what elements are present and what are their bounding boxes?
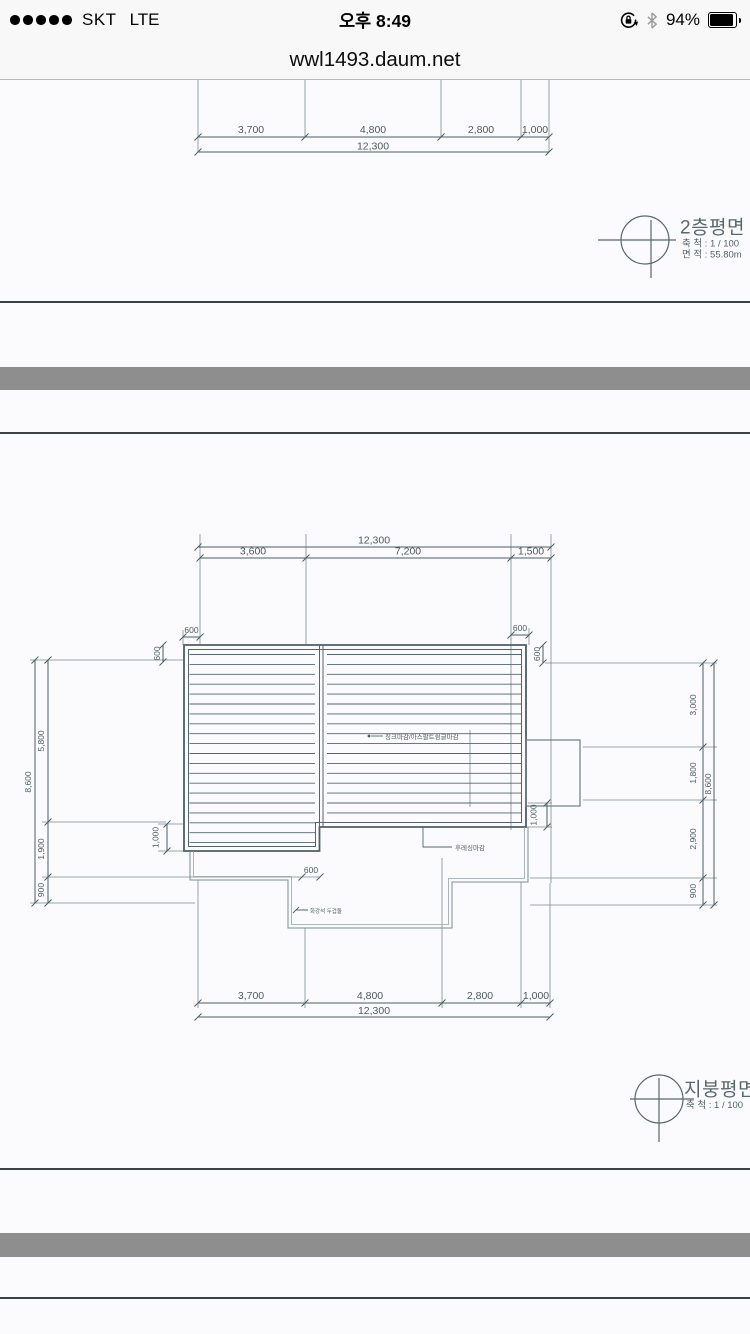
dim-label: 2,800: [467, 990, 493, 1002]
network-label: LTE: [130, 10, 160, 30]
dim-label: 600: [184, 625, 198, 635]
battery-icon: [708, 12, 741, 28]
coping-note: 화강석 두겁돌: [310, 907, 342, 915]
dim-label: 900: [688, 884, 698, 898]
signal-strength-icon: [10, 15, 75, 25]
rotation-lock-icon: [619, 11, 638, 30]
dim-total-label: 12,300: [357, 141, 389, 153]
dim-total-label: 8,600: [703, 773, 713, 795]
dim-label: 600: [513, 623, 527, 633]
dim-label: 1,000: [151, 827, 161, 849]
dim-label: 3,600: [240, 546, 266, 558]
url-text: wwl1493.daum.net: [290, 48, 461, 72]
small-dimension-lines-right: [508, 632, 551, 831]
dim-label: 2,800: [468, 124, 494, 136]
scale-label: 축 척 : 1 / 100: [686, 1100, 743, 1111]
status-bar: SKT LTE 오후 8:49 94%: [0, 0, 750, 40]
extension-lines: [30, 534, 717, 1008]
dim-label: 1,900: [36, 838, 46, 860]
dimension-labels: 3,700 4,800 2,800 1,000 12,300: [238, 124, 548, 153]
dim-label: 3,700: [238, 990, 264, 1002]
dim-label: 4,800: [357, 990, 383, 1002]
phone-screen: SKT LTE 오후 8:49 94% w: [0, 0, 750, 1334]
dim-label: 3,000: [688, 694, 698, 716]
dim-label: 5,800: [36, 730, 46, 752]
dimension-labels-left: 5,800 1,900 900 8,600 1,000 600 600: [23, 625, 199, 897]
floor-plan-2f-partial: 3,700 4,800 2,800 1,000 12,300 2층평면 축 척 …: [0, 80, 750, 301]
bluetooth-icon: [646, 12, 658, 29]
page-separator-band: [0, 367, 750, 390]
annotations: 징크마감/아스팔트슁글마감 후레싱마감 화강석 두겁돌: [293, 732, 485, 915]
dim-label: 600: [304, 865, 318, 875]
dim-total-label: 12,300: [358, 535, 390, 547]
title-block-2f: 2층평면 축 척 : 1 / 100 면 적 : 55.80m: [598, 216, 745, 278]
roof-hatch-left: [190, 655, 316, 843]
dim-label: 600: [532, 647, 542, 661]
dim-label: 4,800: [360, 124, 386, 136]
battery-percent: 94%: [666, 10, 700, 30]
dim-label: 7,200: [395, 546, 421, 558]
page-separator-band: [0, 1233, 750, 1257]
page-title: 2층평면: [680, 217, 745, 239]
carrier-label: SKT: [82, 10, 117, 30]
dim-total-label: 12,300: [358, 1005, 390, 1017]
page-edge-line: [0, 1168, 750, 1170]
dim-label: 2,900: [688, 828, 698, 850]
roof-plan-drawing: 12,300 3,600 7,200 1,500 3,700: [0, 434, 750, 1168]
roof-outline: [184, 645, 526, 851]
dim-label: 3,700: [238, 124, 264, 136]
title-block-roof: 지붕평면 축 척 : 1 / 100: [630, 1075, 750, 1142]
step-dimension: 600: [299, 865, 324, 881]
dim-label: 1,500: [518, 546, 544, 558]
browser-chrome: SKT LTE 오후 8:49 94% w: [0, 0, 750, 80]
dim-total-label: 8,600: [23, 771, 33, 793]
roof-finish-note: 징크마감/아스팔트슁글마감: [385, 732, 459, 741]
dim-label: 1,000: [529, 804, 539, 826]
page-edge-line: [0, 301, 750, 303]
page-title: 지붕평면: [684, 1079, 750, 1101]
page-edge-line: [0, 1297, 750, 1299]
dimension-labels-right: 3,000 1,800 2,900 900 8,600 1,000 600 60…: [513, 623, 713, 898]
roof-dormer-outline: [526, 740, 580, 806]
dim-label: 1,000: [523, 990, 549, 1002]
dimension-lines-left: [32, 657, 52, 907]
flashing-note: 후레싱마감: [455, 843, 485, 852]
dim-label: 600: [152, 646, 162, 660]
area-label: 면 적 : 55.80m: [682, 249, 742, 261]
dim-label: 1,800: [688, 762, 698, 784]
address-bar[interactable]: wwl1493.daum.net: [0, 40, 750, 79]
dimension-labels-top: 12,300 3,600 7,200 1,500: [240, 535, 544, 558]
dim-label: 900: [36, 883, 46, 897]
scale-label: 축 척 : 1 / 100: [682, 239, 739, 250]
dim-label: 1,000: [522, 124, 548, 136]
